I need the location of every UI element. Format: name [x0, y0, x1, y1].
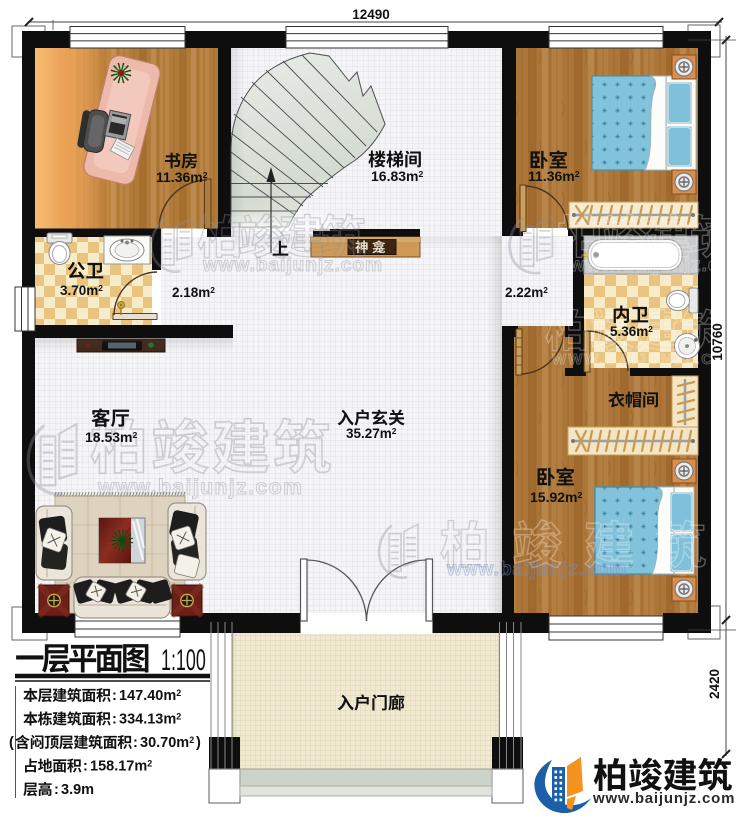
svg-text:15.92m2: 15.92m2 — [530, 489, 582, 505]
svg-text:www.baijunjz.com: www.baijunjz.com — [569, 255, 750, 276]
svg-text::: : — [133, 735, 138, 751]
svg-text:): ) — [196, 735, 201, 751]
svg-text:158.17m2: 158.17m2 — [90, 759, 152, 775]
svg-text:334.13m2: 334.13m2 — [119, 712, 181, 728]
svg-text:10760: 10760 — [710, 323, 725, 361]
svg-text:3.9m: 3.9m — [61, 782, 94, 798]
svg-text:2.22m2: 2.22m2 — [505, 285, 548, 300]
svg-text:3.70m2: 3.70m2 — [60, 283, 103, 298]
svg-text::: : — [83, 759, 88, 775]
svg-text:12490: 12490 — [352, 7, 390, 22]
svg-text::: : — [112, 712, 117, 728]
svg-text:2.18m2: 2.18m2 — [172, 285, 215, 300]
svg-text:www.baijunjz.com: www.baijunjz.com — [97, 476, 303, 499]
svg-text:35.27m2: 35.27m2 — [346, 426, 397, 441]
svg-text:11.36m2: 11.36m2 — [528, 168, 580, 184]
svg-text:11.36m2: 11.36m2 — [156, 169, 208, 185]
svg-text:www.baijunjz.com: www.baijunjz.com — [592, 790, 735, 807]
svg-text:1:100: 1:100 — [161, 645, 206, 678]
svg-text:www.baijunjz.com: www.baijunjz.com — [446, 559, 627, 580]
svg-text::: : — [54, 782, 59, 798]
svg-text:www.baijunjz.com: www.baijunjz.com — [202, 255, 383, 276]
svg-text:(: ( — [9, 735, 14, 751]
svg-text:18.53m2: 18.53m2 — [85, 429, 137, 445]
svg-text:147.40m2: 147.40m2 — [119, 688, 181, 704]
svg-text::: : — [112, 688, 117, 704]
svg-text:5.36m2: 5.36m2 — [610, 324, 653, 339]
svg-text:30.70m2: 30.70m2 — [140, 735, 194, 751]
svg-text:16.83m2: 16.83m2 — [371, 168, 423, 184]
svg-text:2420: 2420 — [707, 669, 722, 699]
